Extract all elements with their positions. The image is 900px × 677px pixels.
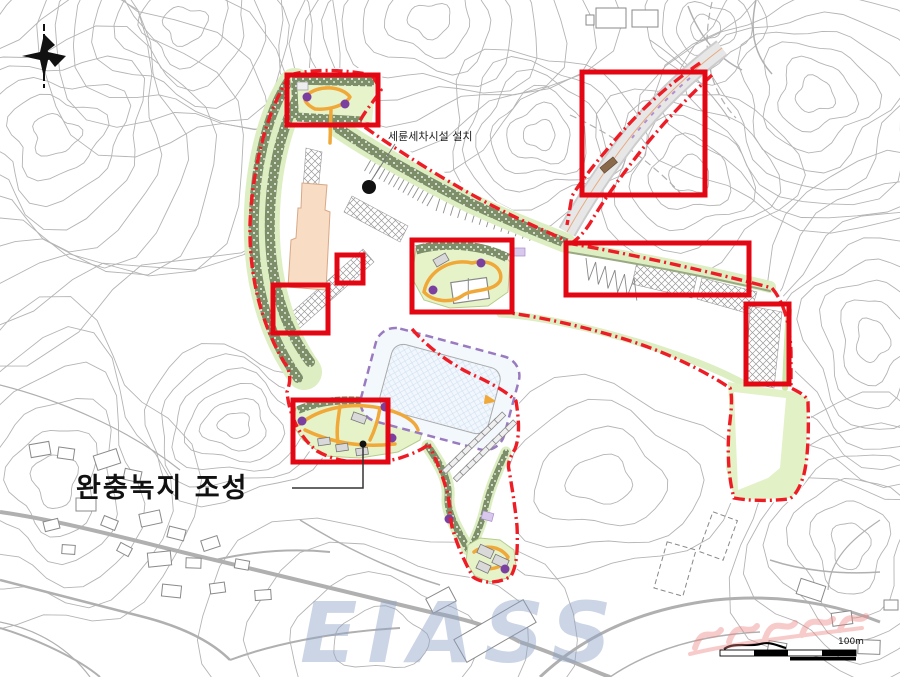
site-plan-svg: 세륜세차시설 설치 완충녹지 조성 100m EIASS bbox=[0, 0, 900, 677]
eiass-watermark: EIASS bbox=[300, 584, 622, 677]
scale-bar: 100m bbox=[720, 637, 864, 661]
southeast-green-wedge bbox=[726, 382, 808, 500]
dashed-plots bbox=[654, 512, 737, 596]
wheel-wash-marker bbox=[362, 180, 376, 194]
buffer-green-leader-dot bbox=[360, 441, 367, 448]
site-area-background bbox=[246, 68, 812, 583]
scale-label: 100m bbox=[838, 637, 864, 647]
lavender-structure-2 bbox=[513, 248, 525, 256]
buffer-green-label: 완충녹지 조성 bbox=[76, 473, 248, 504]
wheel-wash-label: 세륜세차시설 설치 bbox=[388, 130, 472, 143]
site-plan-map: 세륜세차시설 설치 완충녹지 조성 100m EIASS bbox=[0, 0, 900, 677]
